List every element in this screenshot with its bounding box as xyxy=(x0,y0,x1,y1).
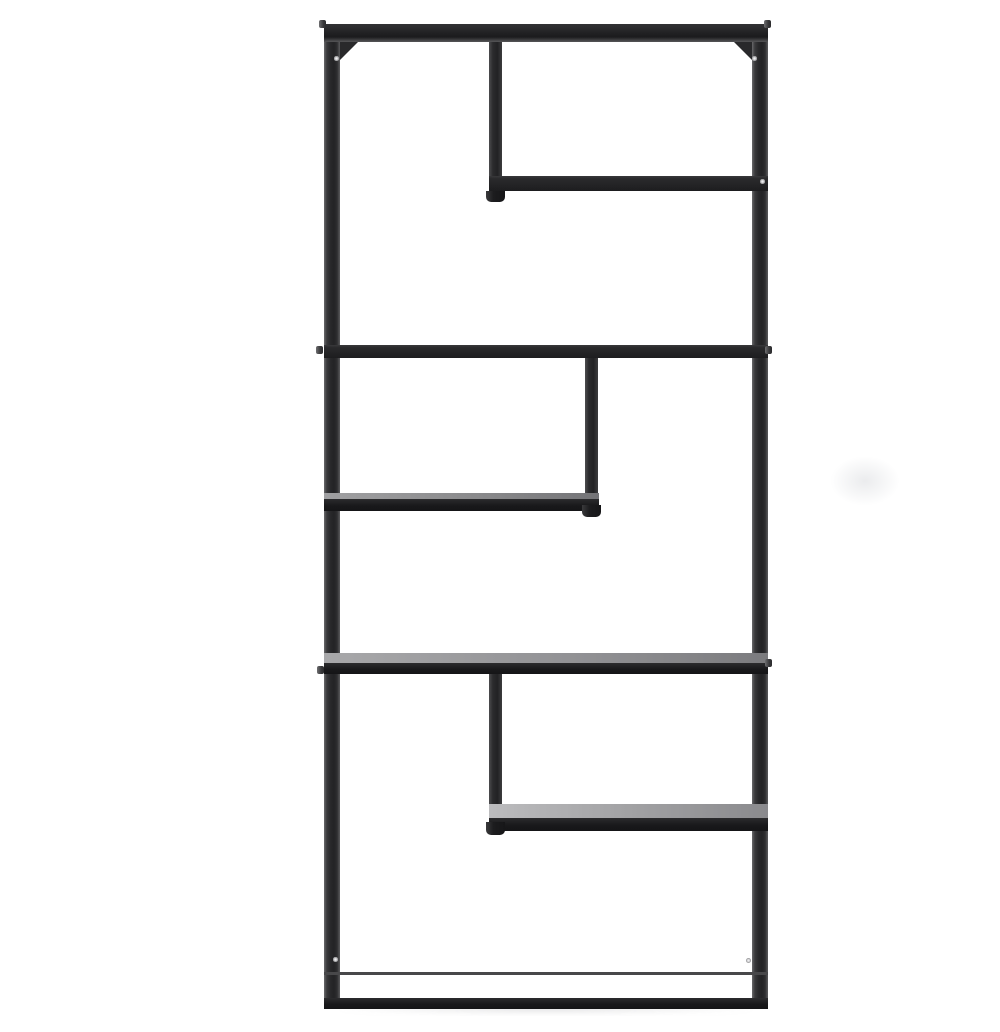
shelf-full-lower-front-edge xyxy=(324,663,768,674)
product-photo-etagere xyxy=(40,16,1000,1016)
frame-right-post xyxy=(752,25,768,1009)
screw-dot xyxy=(334,56,339,61)
shelf-lower-right xyxy=(489,804,768,831)
divider-bottom-foot xyxy=(486,822,505,835)
screw-dot xyxy=(333,957,338,962)
divider-bottom xyxy=(489,674,502,805)
bolt-nub xyxy=(316,346,323,354)
frame-left-post xyxy=(324,25,340,1009)
screw-dot xyxy=(746,958,751,963)
divider-top-foot xyxy=(486,191,505,202)
bolt-nub xyxy=(765,659,772,667)
shelf-upper-right xyxy=(489,176,768,191)
shelf-base-surface xyxy=(324,975,768,998)
divider-top xyxy=(489,42,502,178)
shelf-lower-right-front-edge xyxy=(489,818,768,831)
shelf-lower-right-surface xyxy=(489,804,768,818)
shelf-full-lower-surface xyxy=(324,653,768,663)
frame-top-rail xyxy=(324,24,768,42)
top-right-gusset-brace xyxy=(734,42,752,60)
divider-middle-foot xyxy=(582,505,601,517)
bolt-nub xyxy=(765,346,772,354)
bolt-nub xyxy=(764,20,771,28)
top-left-gusset-brace xyxy=(340,42,358,60)
bolt-nub xyxy=(319,20,326,28)
shelf-middle-left xyxy=(324,493,599,511)
screw-dot xyxy=(752,56,757,61)
shelf-base xyxy=(324,972,768,1009)
shelf-middle-left-front-edge xyxy=(324,499,599,511)
shelf-full-upper xyxy=(324,345,768,358)
screw-dot xyxy=(760,179,765,184)
divider-middle xyxy=(585,358,598,494)
shelf-full-lower xyxy=(324,653,768,674)
bolt-nub xyxy=(317,666,324,674)
background-smudge xyxy=(830,456,900,506)
